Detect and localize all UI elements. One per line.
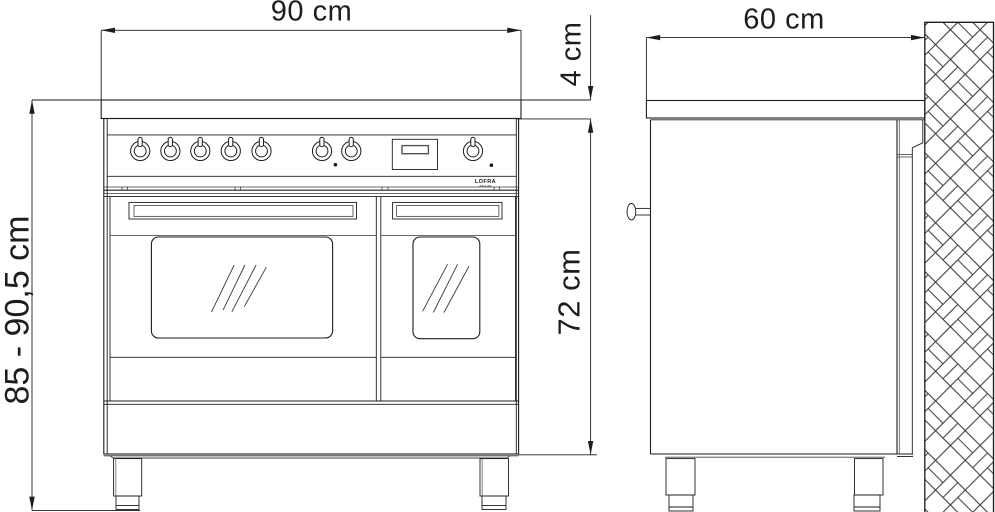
svg-text:85 - 90,5 cm: 85 - 90,5 cm xyxy=(0,216,37,405)
svg-text:90 cm: 90 cm xyxy=(271,0,352,28)
svg-text:4 cm: 4 cm xyxy=(556,22,588,87)
svg-text:60 cm: 60 cm xyxy=(743,4,824,36)
svg-text:72 cm: 72 cm xyxy=(552,249,587,336)
